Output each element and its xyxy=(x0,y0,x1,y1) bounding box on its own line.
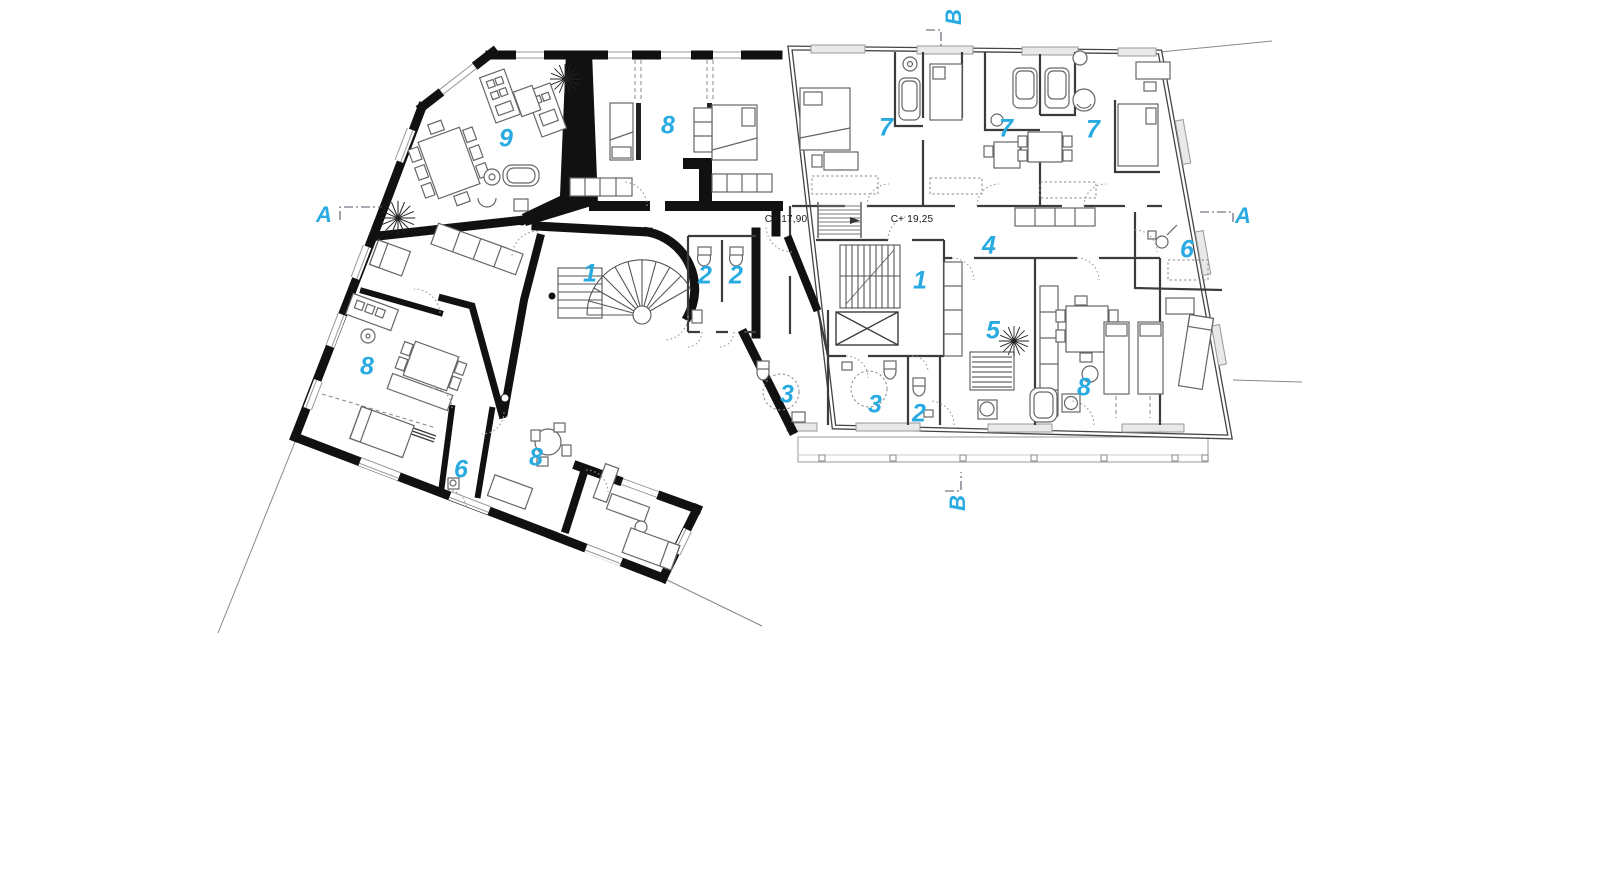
elevator xyxy=(836,312,898,345)
door-pivot-dots xyxy=(501,219,681,403)
spiral-stair xyxy=(558,260,690,324)
room8-kitchen-furniture xyxy=(322,223,523,489)
terrace xyxy=(798,437,1208,462)
floor-plan-drawing xyxy=(0,0,1600,886)
room9-furniture xyxy=(402,69,566,215)
wall-wedge xyxy=(522,52,598,226)
floor-plan-canvas: 9877764122158332868AABBC+ 17,90C+ 19,25 xyxy=(0,0,1600,886)
room8-top-furniture xyxy=(570,60,772,196)
